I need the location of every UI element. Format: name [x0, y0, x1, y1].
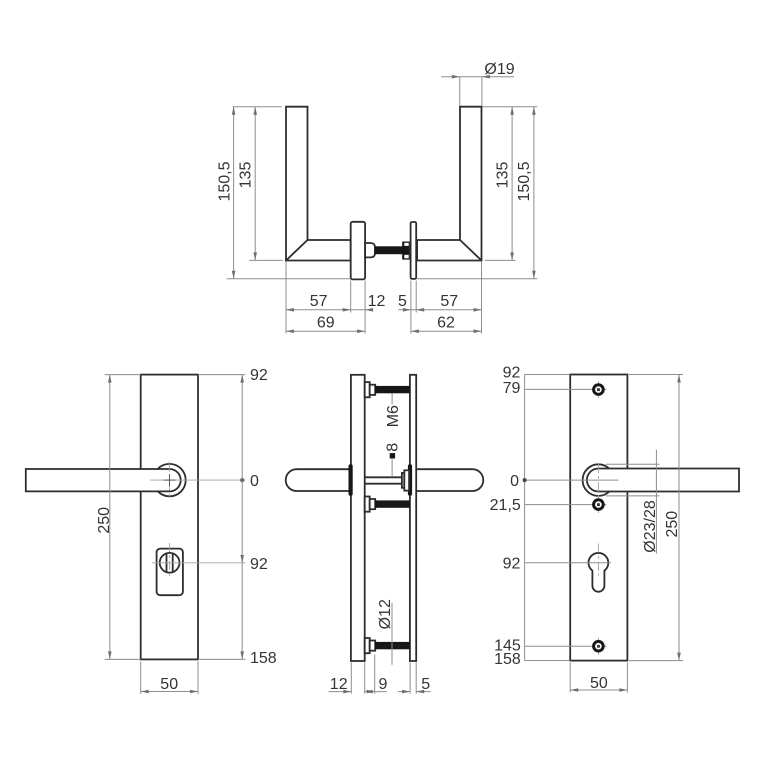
svg-text:92: 92	[503, 556, 521, 573]
svg-text:5: 5	[398, 293, 407, 310]
svg-text:50: 50	[160, 676, 178, 693]
svg-text:5: 5	[421, 676, 430, 693]
svg-text:135: 135	[238, 162, 255, 189]
svg-text:158: 158	[494, 651, 521, 668]
svg-text:0: 0	[250, 473, 259, 490]
svg-text:8: 8	[384, 443, 401, 452]
svg-text:21,5: 21,5	[490, 497, 521, 514]
svg-text:92: 92	[503, 364, 521, 381]
svg-text:12: 12	[330, 676, 348, 693]
svg-text:57: 57	[440, 293, 458, 310]
svg-text:150,5: 150,5	[217, 161, 234, 201]
svg-text:0: 0	[510, 473, 519, 490]
svg-text:150,5: 150,5	[516, 161, 533, 201]
svg-text:9: 9	[378, 676, 387, 693]
svg-text:Ø12: Ø12	[377, 599, 394, 629]
svg-text:135: 135	[494, 162, 511, 189]
svg-text:250: 250	[96, 507, 113, 534]
svg-text:92: 92	[250, 556, 268, 573]
svg-text:M6: M6	[385, 405, 402, 427]
svg-text:250: 250	[664, 511, 681, 538]
svg-text:Ø23/28: Ø23/28	[642, 500, 659, 553]
svg-text:57: 57	[310, 293, 328, 310]
svg-text:50: 50	[590, 675, 608, 692]
svg-text:62: 62	[437, 314, 455, 331]
svg-text:158: 158	[250, 650, 277, 667]
svg-text:69: 69	[317, 314, 335, 331]
svg-text:92: 92	[250, 367, 268, 384]
svg-text:79: 79	[503, 380, 521, 397]
svg-text:12: 12	[368, 293, 386, 310]
